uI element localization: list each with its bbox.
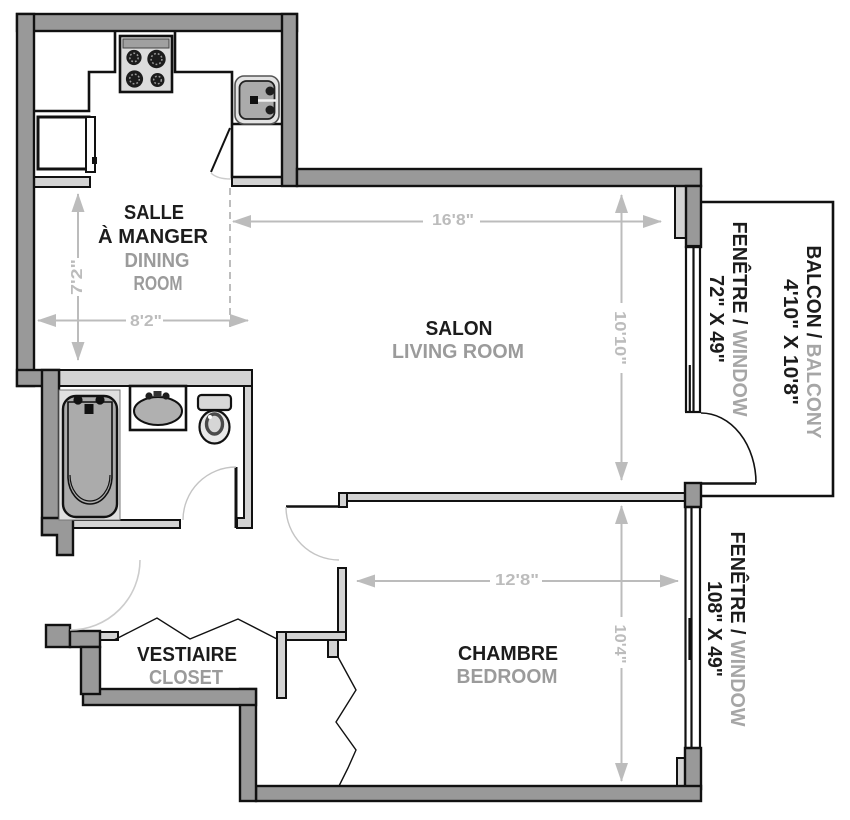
svg-text:16'8": 16'8" — [432, 212, 474, 229]
svg-text:72" X 49": 72" X 49" — [705, 275, 727, 363]
svg-text:À MANGER: À MANGER — [98, 225, 209, 248]
svg-text:108" X 49": 108" X 49" — [703, 581, 725, 677]
svg-text:CHAMBRE: CHAMBRE — [458, 643, 558, 665]
svg-text:BALCON / BALCONY: BALCON / BALCONY — [802, 246, 824, 440]
svg-text:8'2": 8'2" — [130, 313, 162, 330]
svg-text:12'8": 12'8" — [495, 572, 539, 589]
svg-text:7'2": 7'2" — [69, 259, 86, 295]
svg-text:VESTIAIRE: VESTIAIRE — [137, 644, 237, 666]
svg-text:ROOM: ROOM — [134, 273, 183, 295]
svg-text:DINING: DINING — [125, 250, 190, 272]
svg-text:4'10" X 10'8": 4'10" X 10'8" — [779, 279, 801, 405]
svg-text:BEDROOM: BEDROOM — [457, 666, 558, 688]
svg-text:10'10": 10'10" — [611, 311, 628, 365]
svg-text:10'4": 10'4" — [611, 625, 628, 664]
svg-text:SALON: SALON — [426, 318, 493, 340]
svg-text:SALLE: SALLE — [124, 202, 184, 224]
svg-text:LIVING ROOM: LIVING ROOM — [392, 341, 524, 363]
svg-text:FENÊTRE / WINDOW: FENÊTRE / WINDOW — [726, 532, 750, 727]
svg-text:FENÊTRE / WINDOW: FENÊTRE / WINDOW — [728, 222, 752, 417]
svg-text:CLOSET: CLOSET — [149, 667, 223, 689]
